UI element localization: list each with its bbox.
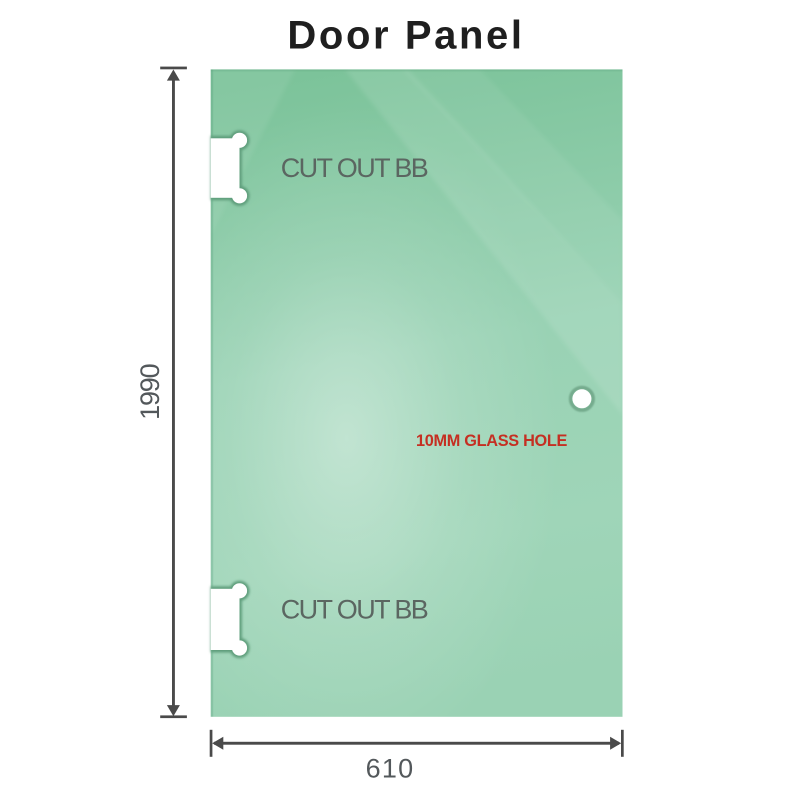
svg-text:CUT OUT BB: CUT OUT BB [281,594,428,624]
svg-text:CUT OUT BB: CUT OUT BB [281,153,428,183]
svg-text:Door Panel: Door Panel [287,14,524,58]
svg-text:1990: 1990 [135,364,165,419]
svg-text:10MM GLASS HOLE: 10MM GLASS HOLE [416,432,568,450]
svg-text:610: 610 [366,754,415,784]
